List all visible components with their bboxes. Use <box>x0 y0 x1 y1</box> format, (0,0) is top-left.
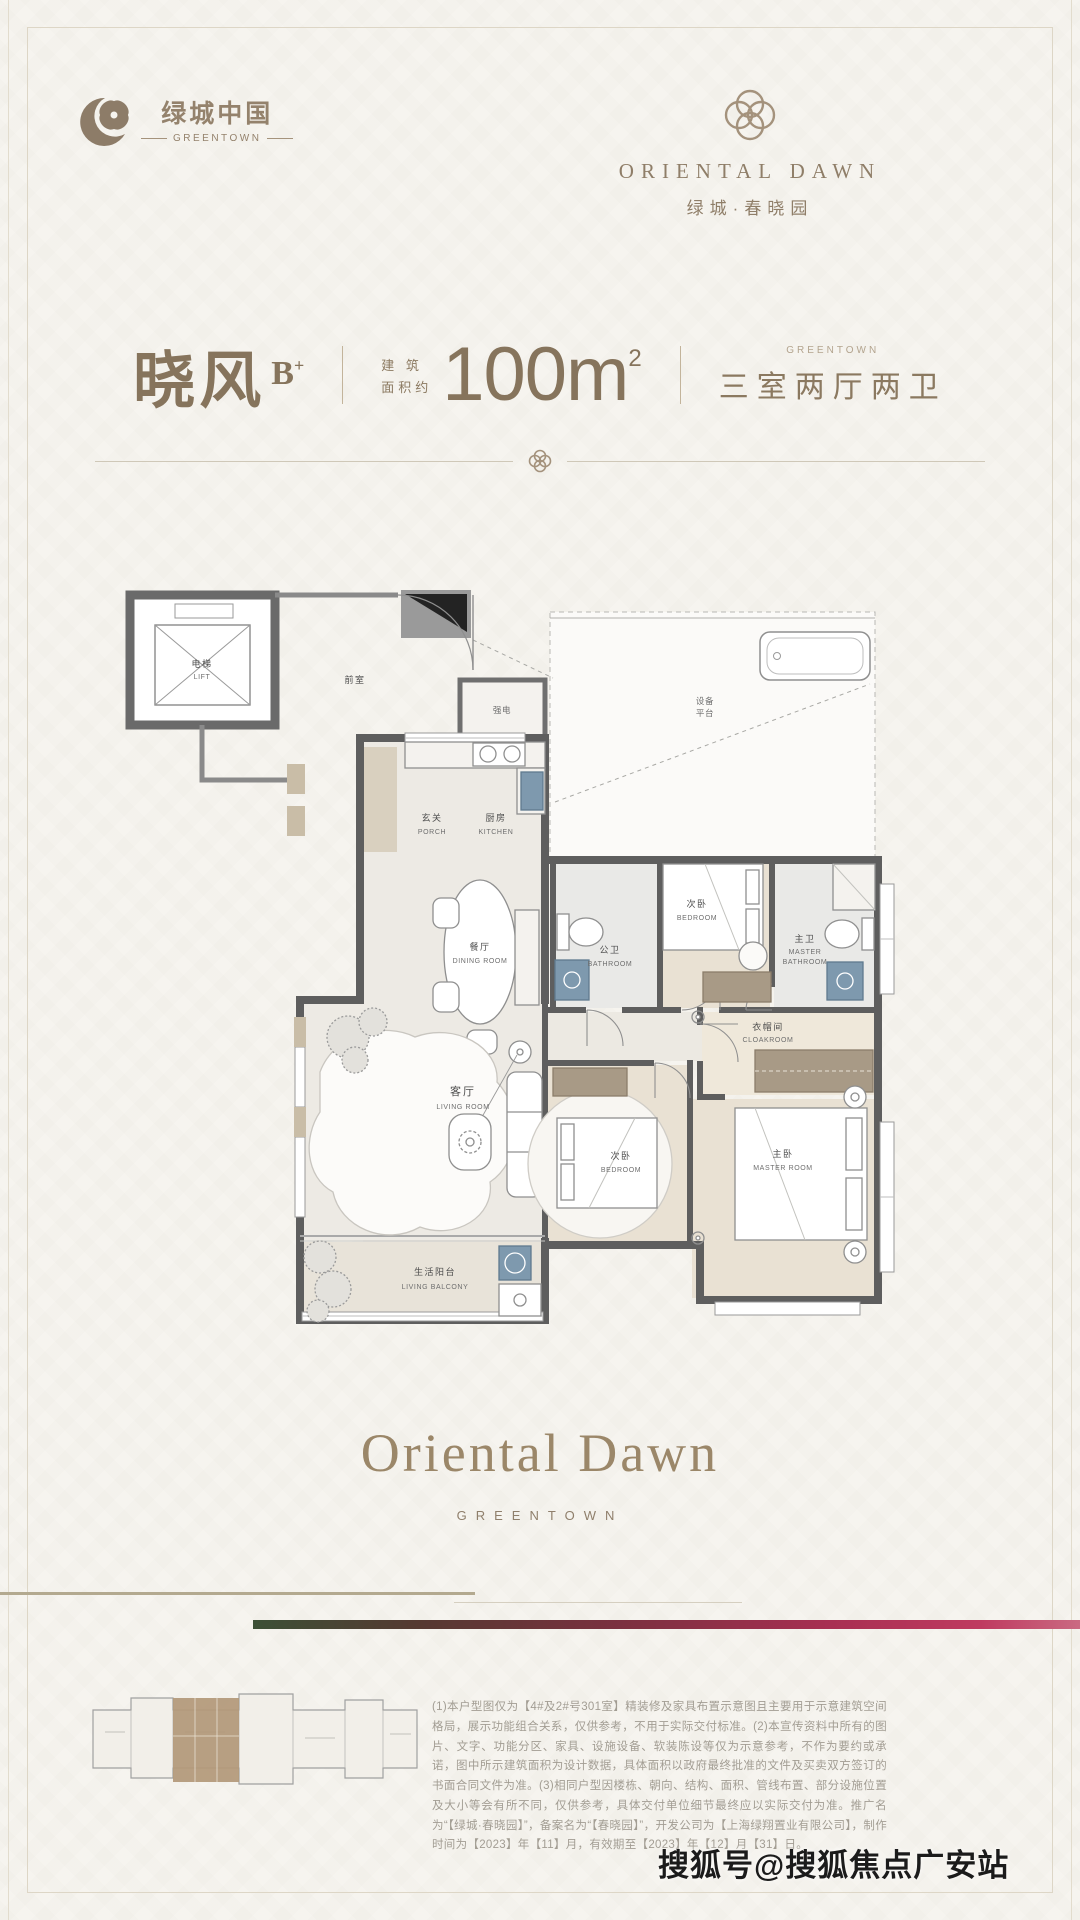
bathtub-icon <box>760 632 870 680</box>
label-equipment-line1: 设备 <box>696 696 714 706</box>
washing-machine-icon <box>499 1246 531 1280</box>
floorplan-drawing: 电梯 LIFT 前室 强电 设备 平台 玄关 PORCH 厨房 KITCHEN … <box>105 552 905 1342</box>
project-name-en: ORIENTAL DAWN <box>545 159 955 184</box>
footer-logo-main: Oriental Dawn <box>0 1422 1080 1484</box>
small-quatrefoil-icon <box>527 448 553 474</box>
area-block: 建 筑 面积约 100m2 <box>381 337 642 413</box>
unit-grade: B+ <box>271 355 304 392</box>
unit-name-block: 晓风B+ <box>133 330 304 420</box>
kitchen-sink <box>521 772 543 810</box>
logo-rule-right <box>267 138 293 139</box>
label-porch-en: PORCH <box>418 829 446 836</box>
flower-divider <box>95 448 985 474</box>
disclaimer-text: (1)本户型图仅为【4#及2#号301室】精装修及家具布置示意图且主要用于示意建… <box>432 1698 887 1856</box>
label-kitchen-cn: 厨房 <box>485 812 506 823</box>
footer-logo: Oriental Dawn GREENTOWN <box>0 1422 1080 1523</box>
logo-rule-left <box>141 138 167 139</box>
building-keyplan <box>85 1672 425 1817</box>
project-name-cn: 绿城·春晓园 <box>545 194 955 219</box>
layout-block: GREENTOWN 三室两厅两卫 <box>719 345 947 406</box>
unit-title-row: 晓风B+ 建 筑 面积约 100m2 GREENTOWN 三室两厅两卫 <box>0 330 1080 420</box>
label-dining-en: DINING ROOM <box>453 958 508 965</box>
keyplan-outline <box>93 1694 417 1784</box>
master-bathroom-sink <box>827 962 863 1000</box>
label-balcony-cn: 生活阳台 <box>414 1266 456 1277</box>
title-divider-2 <box>680 346 681 404</box>
master-bedroom-furniture <box>735 1086 867 1263</box>
greentown-logo: 绿城中国 GREENTOWN <box>75 90 293 148</box>
divider-line-left <box>95 461 513 462</box>
greentown-logo-text: 绿城中国 GREENTOWN <box>141 94 293 144</box>
page-edge-right <box>1071 0 1072 1920</box>
label-lift-en: LIFT <box>194 674 211 681</box>
title-divider-1 <box>342 346 343 404</box>
label-bedroom3-en: BEDROOM <box>601 1167 641 1174</box>
thin-rule-line <box>454 1602 742 1603</box>
label-master-bath-en1: MASTER <box>789 949 822 956</box>
label-living-en: LIVING ROOM <box>436 1104 489 1111</box>
label-cloakroom-cn: 衣帽间 <box>752 1021 784 1032</box>
highlighted-unit <box>173 1698 239 1782</box>
label-bedroom2-cn: 次卧 <box>686 898 707 909</box>
label-living-cn: 客厅 <box>450 1084 476 1098</box>
divider-line-right <box>567 461 985 462</box>
unit-name: 晓风 <box>133 348 265 416</box>
project-logo: ORIENTAL DAWN 绿城·春晓园 <box>545 86 955 219</box>
label-bedroom2-en: BEDROOM <box>677 915 717 922</box>
greentown-en: GREENTOWN <box>173 133 261 144</box>
poster-page: 绿城中国 GREENTOWN ORIENTAL DAWN 绿城·春晓园 晓风B+ <box>0 0 1080 1920</box>
label-dining-cn: 餐厅 <box>469 941 490 952</box>
greentown-crescent-flower-icon <box>75 90 131 148</box>
gradient-rule-line <box>253 1620 1080 1629</box>
watermark-text: 搜狐号@搜狐焦点广安站 <box>658 1840 1009 1885</box>
label-master-cn: 主卧 <box>772 1148 793 1159</box>
label-balcony-en: LIVING BALCONY <box>402 1284 469 1291</box>
bathroom-sink <box>555 960 589 1000</box>
label-cloakroom-en: CLOAKROOM <box>743 1037 794 1044</box>
footer-logo-sub: GREENTOWN <box>0 1508 1080 1523</box>
label-bath-cn: 公卫 <box>599 945 620 955</box>
label-bedroom3-cn: 次卧 <box>610 1150 631 1161</box>
label-lift-cn: 电梯 <box>191 658 212 669</box>
tan-rule-line <box>0 1592 475 1595</box>
label-master-bath-cn: 主卫 <box>794 933 815 944</box>
quatrefoil-icon <box>719 86 781 144</box>
label-master-bath-en2: BATHROOM <box>783 959 828 966</box>
label-porch-cn: 玄关 <box>421 812 442 823</box>
page-edge-left <box>8 0 9 1920</box>
layout-text: 三室两厅两卫 <box>719 362 947 406</box>
label-lobby-cn: 前室 <box>344 674 365 685</box>
layout-overline: GREENTOWN <box>786 345 879 356</box>
area-value: 100m2 <box>442 337 641 413</box>
label-utility-cn: 强电 <box>493 705 511 715</box>
label-bath-en: BATHROOM <box>588 961 633 968</box>
label-equipment-line2: 平台 <box>696 708 714 718</box>
greentown-cn: 绿城中国 <box>161 94 273 130</box>
area-prefix: 建 筑 面积约 <box>381 355 432 396</box>
label-master-en: MASTER ROOM <box>753 1165 813 1172</box>
label-kitchen-en: KITCHEN <box>479 829 514 836</box>
